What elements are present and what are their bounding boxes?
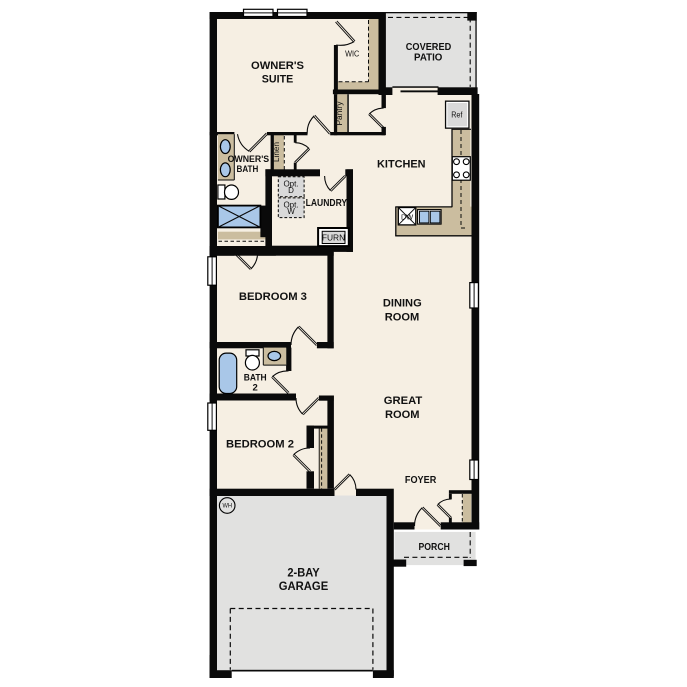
svg-text:KITCHEN: KITCHEN [377, 158, 426, 170]
svg-text:OWNER'S: OWNER'S [251, 60, 305, 72]
svg-text:COVERED: COVERED [406, 42, 451, 53]
svg-text:GARAGE: GARAGE [279, 579, 328, 593]
svg-text:DINING: DINING [383, 297, 422, 309]
svg-text:DW: DW [401, 213, 414, 222]
svg-text:Ref: Ref [451, 111, 463, 120]
svg-text:Linen: Linen [272, 142, 281, 162]
svg-text:2: 2 [253, 383, 258, 394]
svg-text:BEDROOM 2: BEDROOM 2 [226, 438, 294, 450]
svg-text:LAUNDRY: LAUNDRY [306, 197, 348, 209]
svg-text:FURN: FURN [322, 232, 345, 242]
svg-text:2-BAY: 2-BAY [287, 565, 319, 579]
svg-text:BEDROOM 3: BEDROOM 3 [239, 291, 307, 303]
svg-text:WH: WH [222, 503, 232, 510]
svg-text:PATIO: PATIO [414, 53, 443, 64]
svg-text:W: W [287, 207, 295, 216]
svg-text:SUITE: SUITE [262, 73, 294, 85]
svg-text:FOYER: FOYER [405, 475, 437, 486]
svg-text:Pantry: Pantry [335, 101, 344, 125]
svg-text:WIC: WIC [345, 49, 359, 58]
svg-text:ROOM: ROOM [385, 409, 420, 421]
svg-text:GREAT: GREAT [384, 395, 423, 407]
svg-text:BATH: BATH [237, 164, 259, 175]
svg-text:PORCH: PORCH [419, 542, 450, 553]
svg-text:ROOM: ROOM [385, 311, 420, 323]
svg-text:D: D [288, 186, 294, 195]
